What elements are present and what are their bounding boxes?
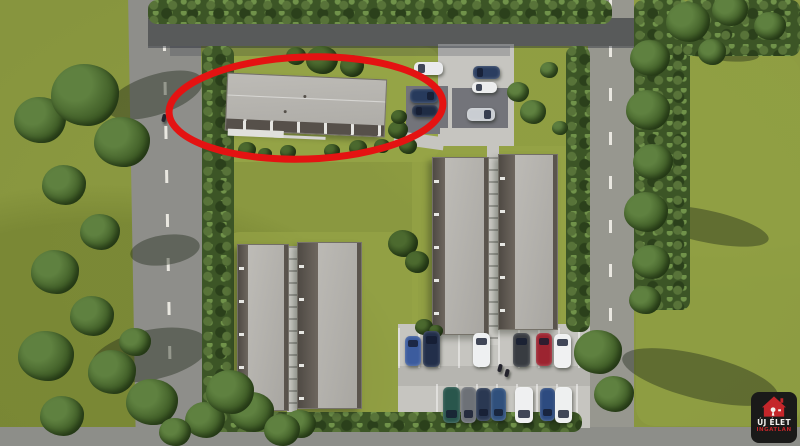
hedge-top-right-corner [682,0,800,56]
logo-text-line1: ÚJ ÉLET [757,418,791,427]
lawn-patch [222,232,418,424]
walkway-right-pair [487,157,498,345]
hedge-inner-left [202,46,234,422]
hedge-bottom [198,412,582,432]
house-icon [762,396,786,417]
walkway-left-pair [287,246,297,414]
road-right-center-line [609,0,612,446]
road-left-center-line [162,0,173,446]
logo-text-line2: INGATLAN [756,427,791,433]
logo-uj-elet-ingatlan: ÚJ ÉLET INGATLAN [751,392,797,443]
lawn-patch [412,146,584,342]
upper-parking-dark-stall-left [406,86,448,134]
road-right [588,0,634,446]
aerial-site-render: ÚJ ÉLET INGATLAN [0,0,800,446]
hedge-inner-right [566,46,590,332]
hedge-top [148,0,612,24]
path-connector [440,128,514,142]
lower-parking-lane [398,366,590,386]
